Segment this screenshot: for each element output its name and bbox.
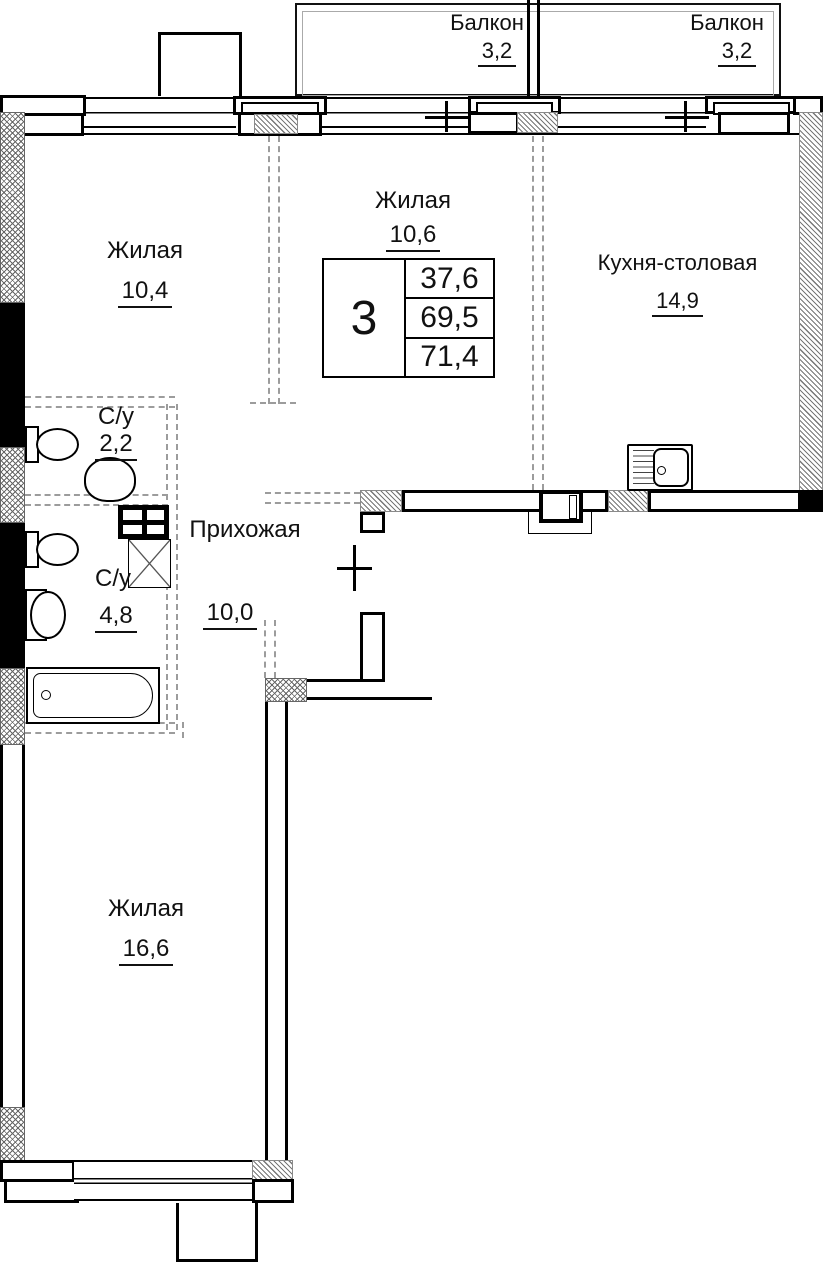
partition-dashed-room1-foot <box>250 398 296 404</box>
room3-right-wall <box>265 702 288 1162</box>
entry-axis-cross-h <box>337 567 372 570</box>
kitchen-wall-hatch-1 <box>360 490 402 512</box>
left-wall-solid-1 <box>0 303 25 447</box>
room-wc2-area: 4,8 <box>86 603 146 633</box>
roof-protrusion <box>158 32 242 96</box>
partition-dashed-room1-room2 <box>268 136 280 404</box>
top-wall-inner-face <box>0 133 801 135</box>
window-axis-cross-2-v <box>684 101 687 132</box>
left-wall-hatch-1 <box>0 112 25 303</box>
room-living3-label: Жилая <box>100 896 192 922</box>
left-wall-solid-2 <box>0 523 25 668</box>
kitchen-sink-drainer <box>633 450 654 486</box>
kitchen-wall-corner <box>799 490 823 512</box>
entry-side-wall <box>360 612 385 682</box>
unit-summary-table: 3 37,6 69,5 71,4 <box>322 258 495 378</box>
washbasin-1 <box>84 457 136 502</box>
summary-areas: 37,6 69,5 71,4 <box>406 260 493 376</box>
bottom-protrusion <box>176 1203 258 1262</box>
room-living1-area: 10,4 <box>90 278 200 308</box>
room-living2-area: 10,6 <box>358 222 468 252</box>
partition-dashed-room2-kitchen <box>532 136 544 490</box>
toilet-1-bowl <box>36 428 79 461</box>
summary-living-area: 37,6 <box>406 260 493 297</box>
floor-plan: Балкон 3,2 Балкон 3,2 <box>0 0 823 1265</box>
left-wall-hatch-4 <box>0 1107 25 1162</box>
hall-wall-line-b <box>306 697 432 700</box>
left-wall-hatch-3 <box>0 668 25 745</box>
left-wall-double <box>0 745 25 1107</box>
bottom-pier-left-lower <box>4 1179 79 1203</box>
summary-rooms-count: 3 <box>324 260 406 376</box>
bathtub-drain <box>41 690 51 700</box>
room-living1-label: Жилая <box>90 238 200 264</box>
wall-pier-2-lower <box>468 112 519 134</box>
vent-shaft-grid <box>118 505 169 539</box>
room-kitchen-label: Кухня-столовая <box>585 251 770 275</box>
summary-total-area: 71,4 <box>406 337 493 376</box>
kitchen-wall-hatch-2 <box>608 490 648 512</box>
washbasin-2-bowl <box>30 591 66 639</box>
bottom-window-glazing <box>74 1160 254 1201</box>
room-kitchen-area: 14,9 <box>585 289 770 317</box>
summary-area: 69,5 <box>406 297 493 336</box>
kitchen-wall-seg-2 <box>648 490 801 512</box>
right-wall-hatch <box>799 112 823 492</box>
room-living3-area: 16,6 <box>100 936 192 966</box>
partition-dashed-bath-stub <box>176 722 184 738</box>
bottom-wall-block-right <box>252 1179 294 1203</box>
balcony-1-area: 3,2 <box>447 39 547 67</box>
left-wall-hatch-2 <box>0 447 25 523</box>
room-wc2-label: С/у <box>83 566 143 592</box>
hall-wall-hatch <box>265 678 307 702</box>
window-glazing-1 <box>84 97 236 128</box>
toilet-2-bowl <box>36 533 79 566</box>
room-hall-label: Прихожая <box>185 517 305 543</box>
room-wc1-label: С/у <box>86 404 146 430</box>
balcony-1-label: Балкон <box>437 11 537 35</box>
room-living2-label: Жилая <box>358 188 468 214</box>
partition-dashed-hall-top <box>265 492 360 504</box>
duct-box-bar <box>569 495 577 519</box>
wall-pier-1-hatch <box>254 114 298 134</box>
bottom-wall-hatch <box>252 1160 293 1181</box>
wall-pier-2-hatch <box>517 112 558 133</box>
room-wc1-area: 2,2 <box>86 431 146 461</box>
wall-pier-3-lower <box>718 112 790 135</box>
balcony-2-area: 3,2 <box>687 39 787 67</box>
window-axis-cross-1-v <box>445 101 448 132</box>
wall-pier-topleft-lower <box>22 113 84 136</box>
entry-pier <box>360 512 385 533</box>
bathtub-inner <box>33 673 153 718</box>
window-axis-cross-2 <box>665 116 709 119</box>
balcony-2-label: Балкон <box>677 11 777 35</box>
kitchen-sink-drain <box>657 466 666 475</box>
room-hall-area: 10,0 <box>185 600 275 630</box>
